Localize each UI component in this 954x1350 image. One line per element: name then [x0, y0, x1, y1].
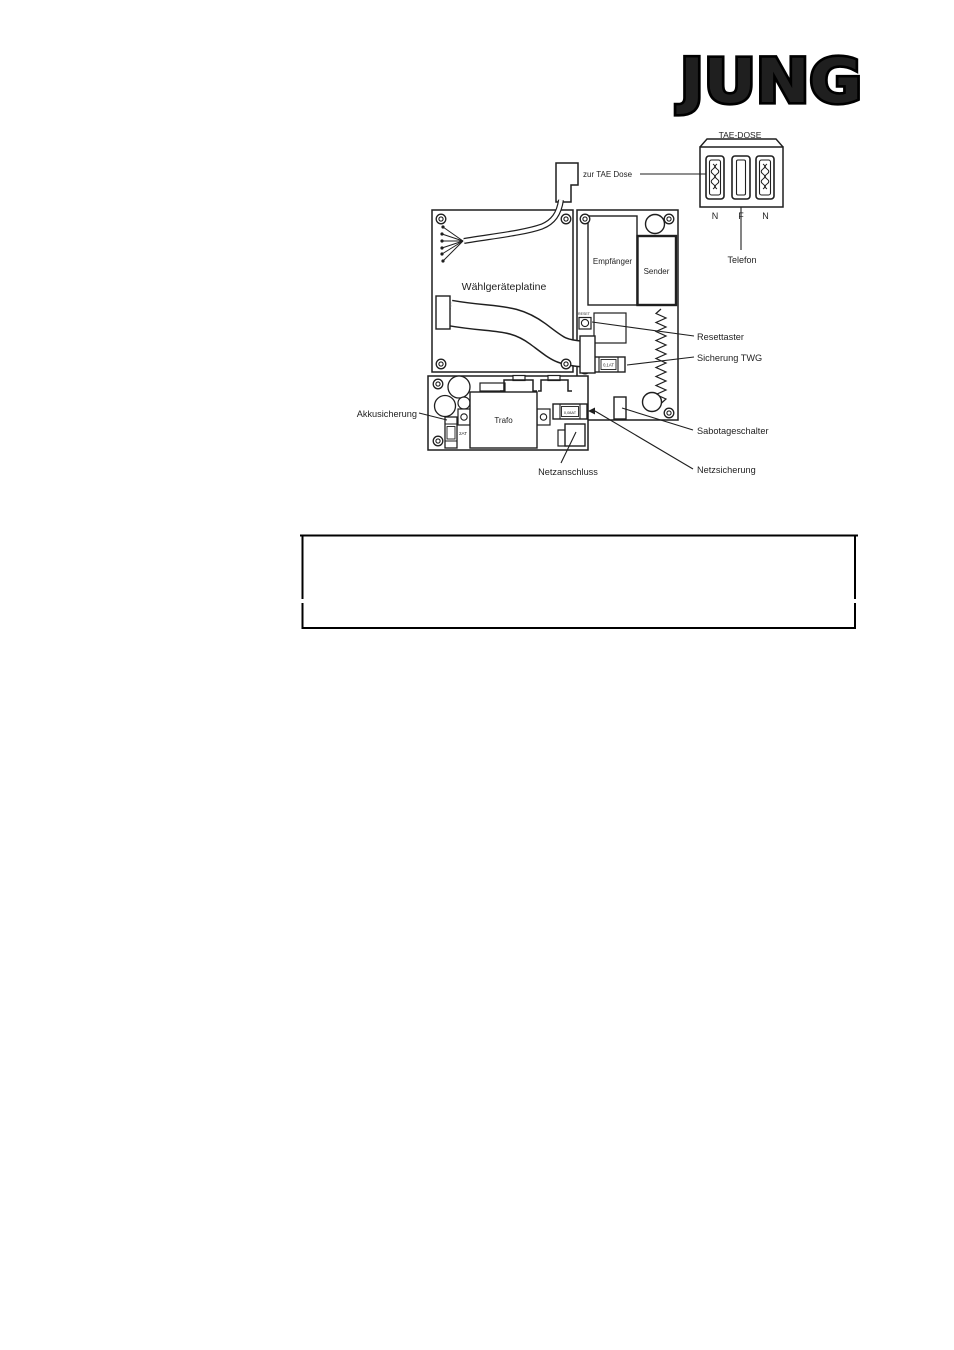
screw-icon — [436, 359, 446, 369]
tae-slot-f — [732, 156, 750, 199]
ribbon-connector-left — [436, 296, 450, 329]
screw-icon — [664, 214, 674, 224]
fuse-twg-value: 0,1AT — [603, 363, 614, 368]
jung-logo: JUNG — [676, 46, 862, 117]
tae-plug — [556, 163, 578, 202]
receiver-label: Empfänger — [593, 257, 632, 266]
resettaster-label: Resettaster — [697, 332, 744, 342]
telefon-label: Telefon — [727, 255, 756, 265]
manual-page: JUNG Wählgeräteplatine Empfänger Sender … — [0, 0, 954, 1350]
screw-icon — [561, 359, 571, 369]
capacitor — [435, 396, 456, 417]
capacitor-small — [458, 397, 470, 409]
dialer-board-label: Wählgeräteplatine — [462, 281, 547, 293]
screw-icon — [664, 408, 674, 418]
crystal-can — [646, 215, 665, 234]
sicherung-twg-label: Sicherung TWG — [697, 353, 762, 363]
note-box — [300, 535, 858, 628]
fuse-mains: 0,08AT — [553, 404, 587, 419]
terminal-strip — [480, 383, 505, 391]
capacitor — [448, 376, 470, 398]
akkusicherung-label: Akkusicherung — [357, 409, 417, 419]
zur-tae-label: zur TAE Dose — [583, 170, 633, 179]
mount-hole — [461, 414, 467, 420]
fuse-mains-value: 0,08AT — [564, 410, 577, 415]
screw-icon — [580, 214, 590, 224]
tamper-switch — [614, 397, 626, 419]
screw-icon — [436, 214, 446, 224]
reset-button-cap — [581, 319, 588, 326]
tae-slot-n-right — [756, 156, 774, 199]
netzsicherung-label: Netzsicherung — [697, 465, 756, 475]
wiring-diagram: JUNG Wählgeräteplatine Empfänger Sender … — [0, 0, 954, 1350]
sabotageschalter-label: Sabotageschalter — [697, 426, 769, 436]
buzzer-can — [643, 393, 662, 412]
sender-label: Sender — [644, 267, 670, 276]
netzanschluss-label: Netzanschluss — [538, 467, 598, 477]
screw-icon — [433, 379, 443, 389]
tae-slot-label-n-right: N — [762, 211, 769, 221]
screw-icon — [561, 214, 571, 224]
fuse-twg: 0,1AT — [592, 357, 625, 372]
fuse-battery-value: 2AT — [459, 431, 467, 436]
tae-slot-n-left — [706, 156, 724, 199]
relay-chip — [594, 313, 626, 343]
ribbon-connector-right — [580, 336, 595, 373]
tae-dose-top-face — [700, 139, 783, 147]
tae-slot-label-n-left: N — [712, 211, 719, 221]
trafo-label: Trafo — [494, 416, 513, 425]
mount-hole — [540, 414, 546, 420]
reset-print-label: RESET — [578, 312, 591, 316]
screw-icon — [433, 436, 443, 446]
